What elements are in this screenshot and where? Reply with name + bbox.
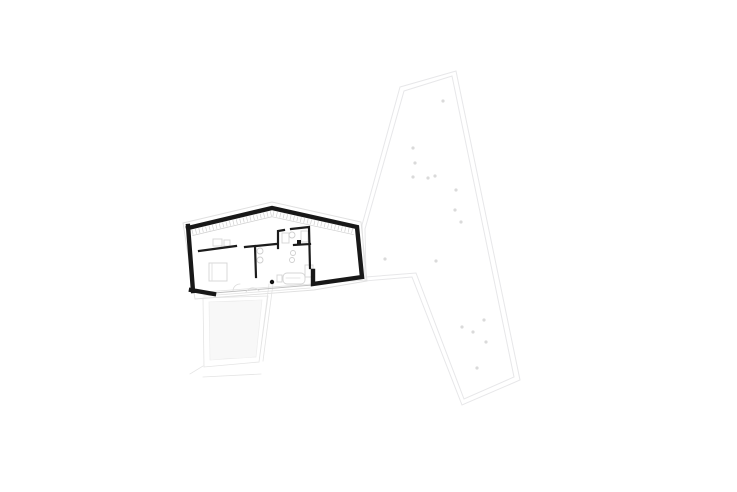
tree-dots <box>383 99 487 369</box>
wall-fixture-block <box>297 240 301 244</box>
terrace-deck-hatch <box>209 300 262 360</box>
interior-walls <box>199 227 310 277</box>
site-plan-svg <box>0 0 737 492</box>
column-dot <box>270 280 274 284</box>
site-boundary-inner <box>365 76 514 399</box>
path-edge-lines <box>204 280 366 296</box>
terrace-outline <box>190 284 273 377</box>
fixture-circles <box>257 232 296 263</box>
floor-plan-canvas <box>0 0 737 492</box>
site-boundary-outer <box>362 71 520 405</box>
